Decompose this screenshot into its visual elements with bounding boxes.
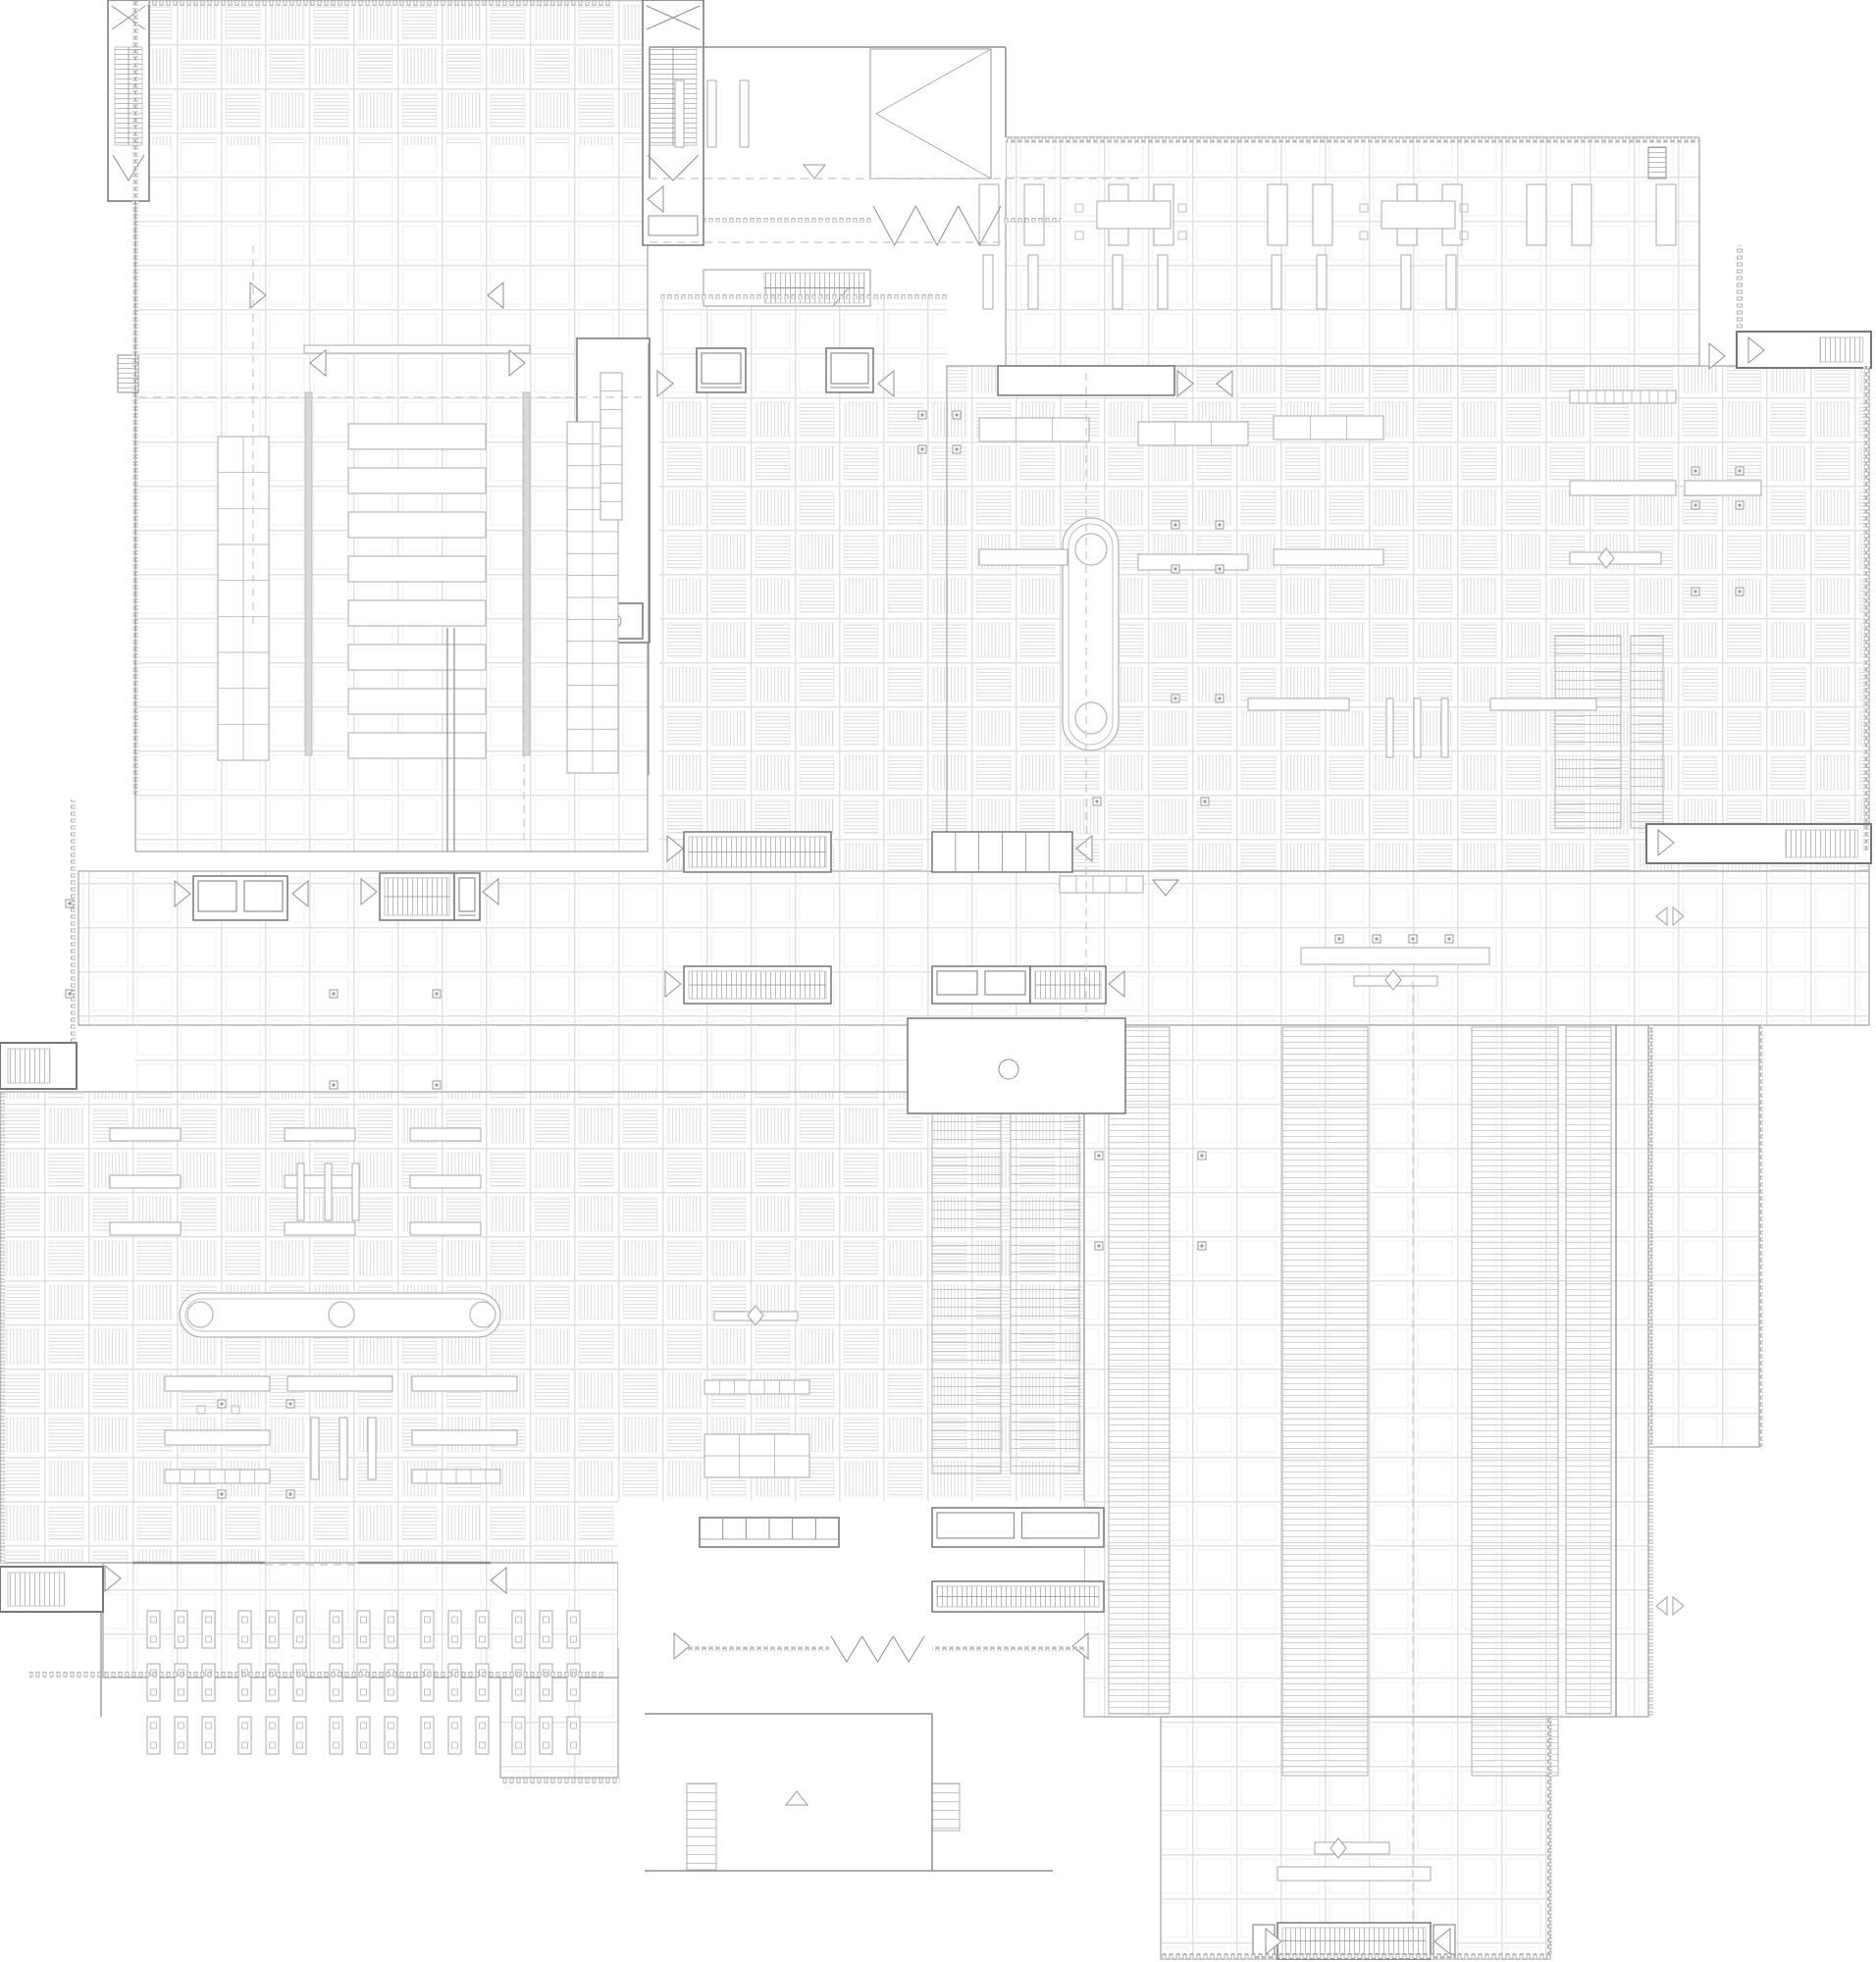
facade-tick-wall — [1006, 137, 1699, 143]
pilaster-wall — [305, 392, 312, 755]
furniture-cells — [1060, 876, 1143, 893]
furniture-slat — [297, 1163, 304, 1220]
column-marker — [1373, 935, 1381, 943]
stair-core — [684, 832, 831, 872]
oval-circle — [1075, 702, 1107, 734]
furniture-bar — [348, 424, 486, 449]
furniture-bar — [1572, 184, 1591, 245]
furniture-bar — [1401, 255, 1411, 309]
column-marker — [1172, 565, 1179, 573]
carrel-desk — [567, 1717, 580, 1754]
stair-core — [703, 270, 870, 306]
carrel-desk — [448, 1664, 461, 1701]
carrel-desk — [385, 1664, 397, 1701]
column-marker — [1409, 935, 1417, 943]
stair-core — [108, 0, 149, 201]
carrel-desk — [567, 1611, 580, 1648]
carrel-desk — [330, 1664, 342, 1701]
carrel-desk — [238, 1664, 251, 1701]
stair-core — [932, 1581, 1104, 1612]
facade-tick-wall — [687, 1646, 829, 1651]
furniture-bar — [285, 1128, 355, 1141]
stair-core — [700, 1518, 839, 1547]
facade-tick-wall — [704, 218, 873, 223]
column-marker — [1201, 798, 1209, 805]
column-marker — [1216, 695, 1224, 702]
carrel-desk — [293, 1611, 306, 1648]
stair-core — [932, 832, 1072, 872]
door-arrow-left-icon — [1656, 1597, 1667, 1615]
shelving-stack — [1472, 1027, 1558, 1776]
stair-core — [0, 1043, 77, 1089]
shelving-stack — [1566, 1027, 1611, 1714]
furniture-slat — [339, 1418, 347, 1479]
column-marker — [1095, 1242, 1103, 1250]
oval-circle — [329, 1302, 354, 1327]
furniture-cells — [979, 418, 1089, 441]
zone-east-gallery — [1651, 1025, 1759, 1447]
zone-office-wing — [1006, 137, 1699, 366]
oval-circle — [1075, 534, 1107, 565]
door-arrow-right-icon — [1673, 1597, 1684, 1615]
furniture-bar — [348, 689, 486, 714]
column-marker — [218, 1400, 226, 1408]
carrel-desk — [567, 1664, 580, 1701]
elevator-core — [932, 966, 1030, 1004]
column-marker — [1335, 935, 1343, 943]
column-marker — [1095, 1152, 1103, 1160]
furniture-cells — [1138, 422, 1248, 445]
carrel-desk — [357, 1611, 370, 1648]
stair-flight — [8, 1049, 50, 1083]
furniture-bar — [348, 556, 486, 582]
zone-upper-left-band — [135, 0, 648, 145]
facade-tick-wall — [29, 1672, 603, 1678]
furniture-bar — [1381, 201, 1455, 229]
column-marker — [1172, 521, 1179, 529]
stair-core — [643, 0, 703, 245]
carrel-desk — [385, 1611, 397, 1648]
carrel-desk — [266, 1611, 279, 1648]
furniture-bar — [979, 549, 1068, 565]
facade-tick-wall — [1863, 366, 1869, 852]
carrel-desk — [238, 1611, 251, 1648]
carrel-desk — [202, 1664, 215, 1701]
furniture-bar — [1097, 201, 1171, 229]
furniture-bar — [348, 733, 486, 758]
carrel-desk — [476, 1611, 489, 1648]
track-oval-vertical — [1063, 518, 1119, 750]
carrel-desk — [147, 1717, 160, 1754]
furniture-bar — [285, 1175, 355, 1188]
triangle-up-icon — [786, 1791, 808, 1805]
furniture-bar — [1158, 255, 1168, 309]
furniture-bar — [410, 1222, 481, 1235]
carrel-desk — [175, 1717, 187, 1754]
column-marker — [287, 1490, 294, 1498]
furniture-bar — [1317, 255, 1327, 309]
column-marker — [1198, 1242, 1206, 1250]
column-marker — [1445, 935, 1453, 943]
furniture-bar — [285, 1222, 355, 1235]
carrel-desk — [421, 1611, 434, 1648]
column-marker — [918, 445, 926, 453]
shelving-stack — [687, 1783, 716, 1870]
carrel-desk — [476, 1664, 489, 1701]
column-marker — [1736, 501, 1744, 509]
furniture-bar — [1446, 255, 1456, 309]
furniture-bar — [110, 1175, 181, 1188]
carrel-desk — [202, 1717, 215, 1754]
column-marker — [953, 445, 961, 453]
carrel-desk — [540, 1611, 552, 1648]
oval-circle — [187, 1302, 213, 1327]
furniture-bar — [1274, 549, 1383, 565]
furniture-bar — [412, 1430, 517, 1445]
column-marker — [287, 1400, 294, 1408]
column-marker — [1736, 467, 1744, 475]
carrel-desk — [512, 1664, 525, 1701]
carrel-desk — [293, 1664, 306, 1701]
carrel-desk — [357, 1717, 370, 1754]
furniture-cells — [1274, 416, 1383, 439]
furniture-bar — [348, 600, 486, 626]
stair-core — [1030, 966, 1106, 1004]
furniture-slat — [1441, 698, 1448, 757]
stair-flight — [1786, 830, 1857, 857]
track-oval-horizontal — [180, 1293, 500, 1337]
carrel-desk — [448, 1611, 461, 1648]
furniture-bar — [1313, 184, 1332, 245]
carrel-desk — [147, 1611, 160, 1648]
furniture-bar — [165, 1376, 270, 1391]
furniture-cells — [704, 1434, 809, 1477]
furniture-bar — [1268, 184, 1287, 245]
shelving-stack — [1282, 1027, 1368, 1776]
column-marker — [1216, 565, 1224, 573]
furniture-bar — [287, 1376, 392, 1391]
furniture-bar — [304, 345, 530, 353]
furniture-slat — [325, 1163, 332, 1220]
column-marker — [433, 990, 441, 998]
furniture-bar — [1024, 184, 1044, 245]
furniture-bar — [410, 1175, 481, 1188]
furniture-slat — [368, 1418, 376, 1479]
furniture-bar — [1113, 255, 1122, 309]
furniture-bar — [1138, 554, 1248, 570]
facade-tick-wall — [1161, 1953, 1550, 1959]
carrel-desk — [448, 1717, 461, 1754]
floor-plan-sheet — [0, 0, 1876, 1962]
column-marker — [953, 411, 961, 419]
furniture-bar — [1656, 184, 1676, 245]
furniture-bar — [1248, 698, 1349, 710]
column-marker — [1172, 695, 1179, 702]
furniture-cells — [704, 1380, 809, 1394]
stair-flight — [1820, 337, 1863, 362]
elevator-core — [193, 876, 287, 920]
furniture-slat — [1386, 698, 1393, 757]
column-marker — [1093, 798, 1101, 805]
carrel-desk — [512, 1611, 525, 1648]
furniture-bar — [412, 1376, 517, 1391]
column-marker — [330, 1081, 338, 1089]
furniture-bar — [1527, 184, 1546, 245]
stair-core — [1648, 147, 1666, 179]
carrel-desk — [293, 1717, 306, 1754]
furniture-bar — [740, 80, 749, 147]
facade-tick-wall — [1547, 1717, 1552, 1953]
column-marker — [1692, 588, 1699, 595]
carrel-desk — [385, 1717, 397, 1754]
carrel-desk — [202, 1611, 215, 1648]
facade-tick-wall — [1759, 1025, 1763, 1447]
facade-tick-wall — [147, 0, 611, 6]
carrel-desk — [421, 1664, 434, 1701]
carrel-desk — [476, 1717, 489, 1754]
zone-lower-hall — [0, 1092, 1084, 1563]
shelving-stack — [1555, 636, 1621, 828]
carrel-desk — [540, 1717, 552, 1754]
facade-tick-wall — [71, 800, 76, 1043]
carrel-desk — [266, 1664, 279, 1701]
furniture-bar — [1570, 552, 1661, 564]
furniture-bar — [1315, 1842, 1389, 1854]
ramp-triangle-room — [870, 49, 991, 179]
furniture-slat — [1414, 698, 1421, 757]
column-marker — [1736, 588, 1744, 595]
column-marker — [330, 990, 338, 998]
furniture-cells — [1570, 390, 1676, 403]
carrel-desk — [147, 1664, 160, 1701]
furniture-bar — [707, 80, 716, 147]
zone-great-hall-west — [659, 392, 947, 871]
facade-tick-wall — [500, 1778, 620, 1783]
carrel-desk — [238, 1717, 251, 1754]
furniture-bar — [1490, 698, 1596, 710]
furniture-bar — [1570, 481, 1676, 495]
carrel-desk — [421, 1717, 434, 1754]
door-swing-icon — [1709, 343, 1725, 369]
furniture-bar — [348, 645, 486, 670]
carrel-desk — [175, 1611, 187, 1648]
column-marker — [1198, 1152, 1206, 1160]
stair-flight — [8, 1573, 65, 1606]
furniture-cells — [412, 1470, 500, 1483]
exterior-stair — [1648, 147, 1666, 179]
room-box — [908, 1018, 1125, 1113]
furniture-bar — [1028, 255, 1038, 309]
furniture-slat — [352, 1163, 359, 1220]
facade-tick-wall — [0, 1092, 5, 1563]
column-marker — [218, 1490, 226, 1498]
furniture-bar — [1272, 255, 1281, 309]
shelving-stack — [1109, 1027, 1170, 1714]
facade-tick-wall — [932, 1646, 1086, 1651]
stair-core — [684, 966, 831, 1004]
elevator-core — [826, 348, 873, 392]
facade-tick-wall — [132, 0, 138, 795]
stair-core — [1646, 824, 1871, 863]
shelving-stack — [932, 1783, 960, 1831]
carrel-desk — [175, 1664, 187, 1701]
elevator-core — [932, 1508, 1104, 1547]
carrel-desk — [330, 1717, 342, 1754]
carrel-desk — [266, 1717, 279, 1754]
furniture-bar — [110, 1128, 181, 1141]
column-marker — [918, 411, 926, 419]
facade-tick-wall — [1003, 218, 1062, 223]
facade-tick-wall — [1648, 1025, 1653, 1717]
stair-core — [380, 873, 454, 920]
furniture-bar — [348, 512, 486, 538]
facade-tick-wall — [1737, 245, 1743, 329]
furniture-bar — [165, 1430, 270, 1445]
facade-tick-wall — [659, 294, 947, 299]
furniture-bar — [983, 255, 993, 309]
floor-plan-drawing — [0, 0, 1876, 1962]
carrel-desk — [357, 1664, 370, 1701]
shelving-stack — [1631, 636, 1663, 828]
furniture-cells — [218, 437, 269, 760]
column-marker — [1216, 521, 1224, 529]
furniture-cells — [165, 1470, 270, 1483]
furniture-cells — [600, 373, 622, 520]
furniture-bar — [348, 468, 486, 493]
furniture-bar — [410, 1128, 481, 1141]
furniture-bar — [1685, 481, 1761, 495]
carrel-desk — [540, 1664, 552, 1701]
furniture-bar — [1301, 948, 1489, 964]
furniture-bar — [1277, 1867, 1431, 1881]
elevator-core — [454, 873, 480, 920]
elevator-core — [697, 348, 746, 392]
stair-core — [0, 1567, 103, 1612]
column-marker — [1692, 467, 1699, 475]
furniture-bar — [110, 1222, 181, 1235]
column-marker — [433, 1081, 441, 1089]
carrel-desk — [330, 1611, 342, 1648]
furniture-bar — [675, 80, 684, 147]
carrel-desk — [512, 1717, 525, 1754]
column-marker — [1692, 501, 1699, 509]
furniture-slat — [311, 1418, 319, 1479]
oval-circle — [470, 1302, 495, 1327]
